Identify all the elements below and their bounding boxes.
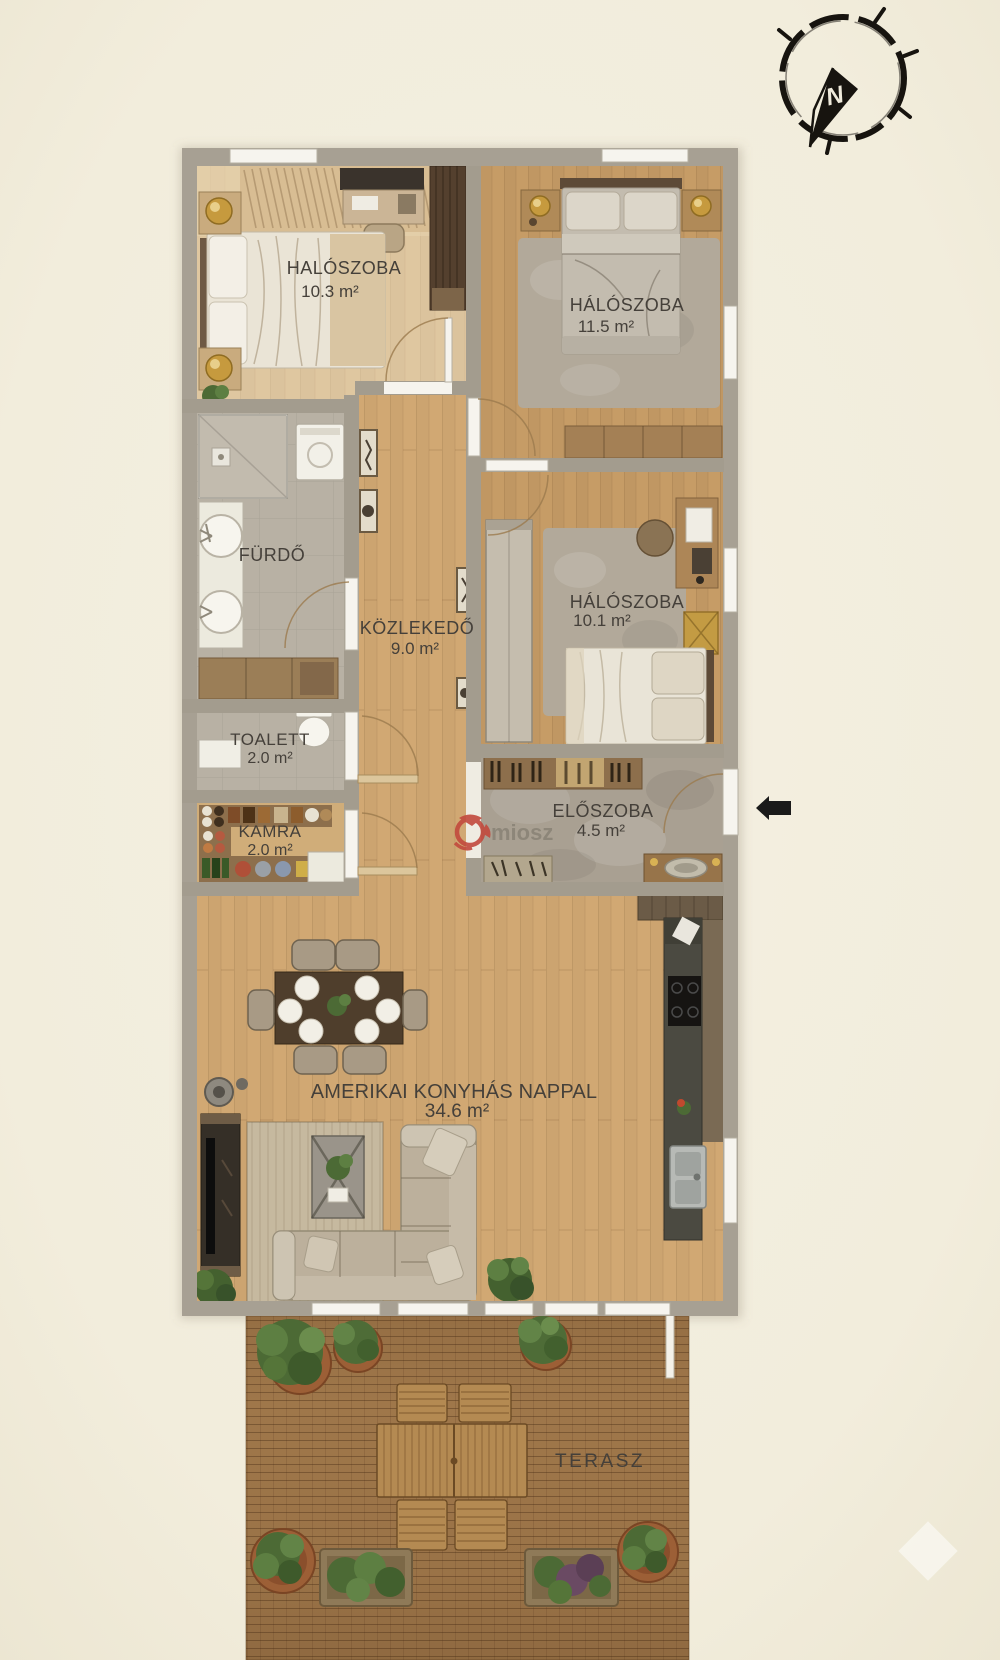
svg-text:HÁLÓSZOBA: HÁLÓSZOBA <box>570 294 685 315</box>
svg-text:KAMRA: KAMRA <box>239 822 302 841</box>
svg-text:4.5 m²: 4.5 m² <box>577 821 626 840</box>
svg-text:AMERIKAI KONYHÁS NAPPAL: AMERIKAI KONYHÁS NAPPAL <box>311 1080 598 1103</box>
svg-text:9.0 m²: 9.0 m² <box>391 639 440 658</box>
svg-text:34.6 m²: 34.6 m² <box>425 1101 489 1122</box>
svg-text:TOALETT: TOALETT <box>230 730 310 749</box>
svg-text:FÜRDŐ: FÜRDŐ <box>239 544 306 565</box>
svg-text:2.0 m²: 2.0 m² <box>247 842 293 859</box>
svg-text:KÖZLEKEDŐ: KÖZLEKEDŐ <box>360 617 475 638</box>
svg-text:10.1 m²: 10.1 m² <box>573 611 631 630</box>
svg-text:HALÓSZOBA: HALÓSZOBA <box>287 257 402 278</box>
svg-text:HÁLÓSZOBA: HÁLÓSZOBA <box>570 591 685 612</box>
svg-text:2.0 m²: 2.0 m² <box>247 750 293 767</box>
svg-text:11.5 m²: 11.5 m² <box>578 317 635 336</box>
svg-text:miosz: miosz <box>491 820 553 845</box>
svg-text:10.3 m²: 10.3 m² <box>301 282 359 301</box>
svg-text:ELŐSZOBA: ELŐSZOBA <box>552 800 653 821</box>
svg-text:TERASZ: TERASZ <box>555 1451 645 1472</box>
